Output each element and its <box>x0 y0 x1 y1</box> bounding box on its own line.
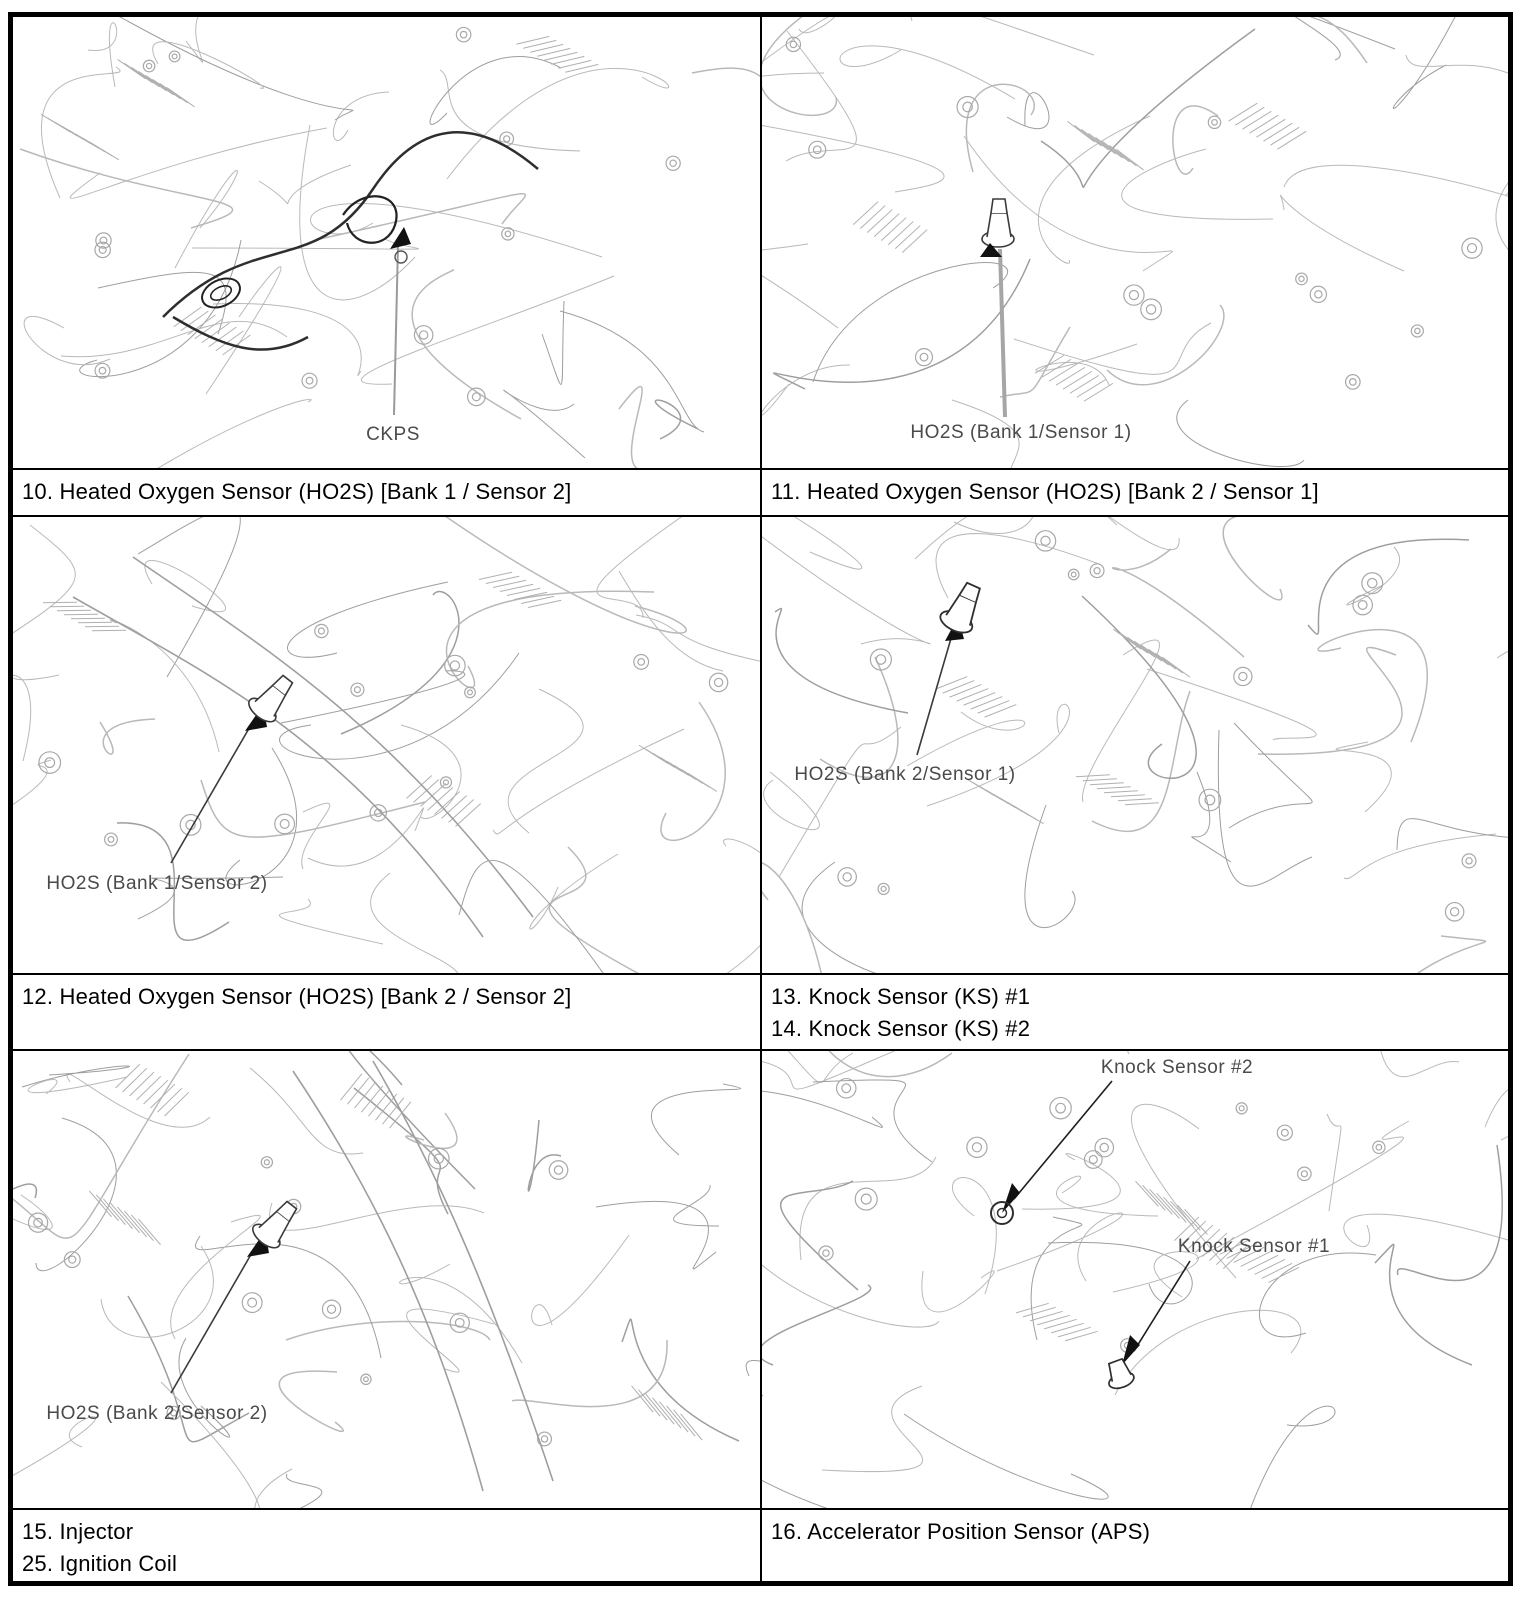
ckps-leader-line <box>394 245 398 415</box>
knock-sensor-1-glyph <box>1102 1357 1136 1391</box>
caption-11: 11. Heated Oxygen Sensor (HO2S) [Bank 2 … <box>771 476 1508 508</box>
knock-sensor-1-leader-line <box>1134 1261 1190 1351</box>
ho2s-b2s1-leader-line <box>917 635 952 755</box>
ho2s-b2s2-label: HO2S (Bank 2/Sensor 2) <box>46 1403 267 1425</box>
caption-16: 16. Accelerator Position Sensor (APS) <box>771 1516 1508 1548</box>
caption-cell-12: 12. Heated Oxygen Sensor (HO2S) [Bank 2 … <box>13 975 760 1049</box>
engine-illustration <box>13 1051 760 1508</box>
panel-ho2s-b2s2-illustration: HO2S (Bank 2/Sensor 2) <box>13 1051 760 1508</box>
ho2s-b2s1-label: HO2S (Bank 2/Sensor 1) <box>794 764 1015 786</box>
caption-15: 15. Injector <box>22 1516 760 1548</box>
engine-illustration <box>762 1051 1508 1508</box>
ho2s-sensor-glyph <box>982 199 1014 247</box>
ckps-label: CKPS <box>366 424 420 446</box>
panel-knock-sensors-illustration: Knock Sensor #2 Knock Sensor #1 <box>762 1051 1508 1508</box>
caption-cell-11: 11. Heated Oxygen Sensor (HO2S) [Bank 2 … <box>762 470 1508 515</box>
ho2s-b1s1-leader-line <box>1000 249 1005 417</box>
knock-sensor-2-leader-line <box>1014 1081 1112 1199</box>
ho2s-sensor-glyph <box>245 669 300 727</box>
knock-sensor-1-label: Knock Sensor #1 <box>1178 1236 1330 1258</box>
ho2s-b1s2-leader-line <box>171 725 251 863</box>
panel-ho2s-b2s1-illustration: HO2S (Bank 2/Sensor 1) <box>762 517 1508 973</box>
caption-cell-13-14: 13. Knock Sensor (KS) #1 14. Knock Senso… <box>762 975 1508 1049</box>
ho2s-b1s1-label: HO2S (Bank 1/Sensor 1) <box>910 422 1131 444</box>
knock-sensor-2-label: Knock Sensor #2 <box>1101 1057 1253 1079</box>
caption-12: 12. Heated Oxygen Sensor (HO2S) [Bank 2 … <box>22 981 760 1013</box>
engine-illustration <box>13 517 760 973</box>
caption-13: 13. Knock Sensor (KS) #1 <box>771 981 1508 1013</box>
engine-illustration <box>762 517 1508 973</box>
ho2s-b1s2-label: HO2S (Bank 1/Sensor 2) <box>46 873 267 895</box>
caption-25: 25. Ignition Coil <box>22 1548 760 1580</box>
panel-ho2s-b1s1-illustration: HO2S (Bank 1/Sensor 1) <box>762 17 1508 468</box>
caption-cell-15-25: 15. Injector 25. Ignition Coil <box>13 1510 760 1581</box>
caption-cell-16: 16. Accelerator Position Sensor (APS) <box>762 1510 1508 1581</box>
ho2s-sensor-glyph <box>937 578 988 637</box>
caption-14: 14. Knock Sensor (KS) #2 <box>771 1013 1508 1045</box>
engine-illustration <box>13 17 760 468</box>
engine-illustration <box>762 17 1508 468</box>
sensor-location-figure-table: CKPS HO2S (Bank 1/Sensor 1) 10. Heated O… <box>8 12 1513 1586</box>
ho2s-b2s2-leader-line <box>171 1251 253 1393</box>
caption-cell-10: 10. Heated Oxygen Sensor (HO2S) [Bank 1 … <box>13 470 760 515</box>
panel-ho2s-b1s2-illustration: HO2S (Bank 1/Sensor 2) <box>13 517 760 973</box>
manual-page: { "panels": { "p10": { "label": "CKPS" }… <box>0 0 1526 1598</box>
caption-10: 10. Heated Oxygen Sensor (HO2S) [Bank 1 … <box>22 476 760 508</box>
panel-ckps-illustration: CKPS <box>13 17 760 468</box>
